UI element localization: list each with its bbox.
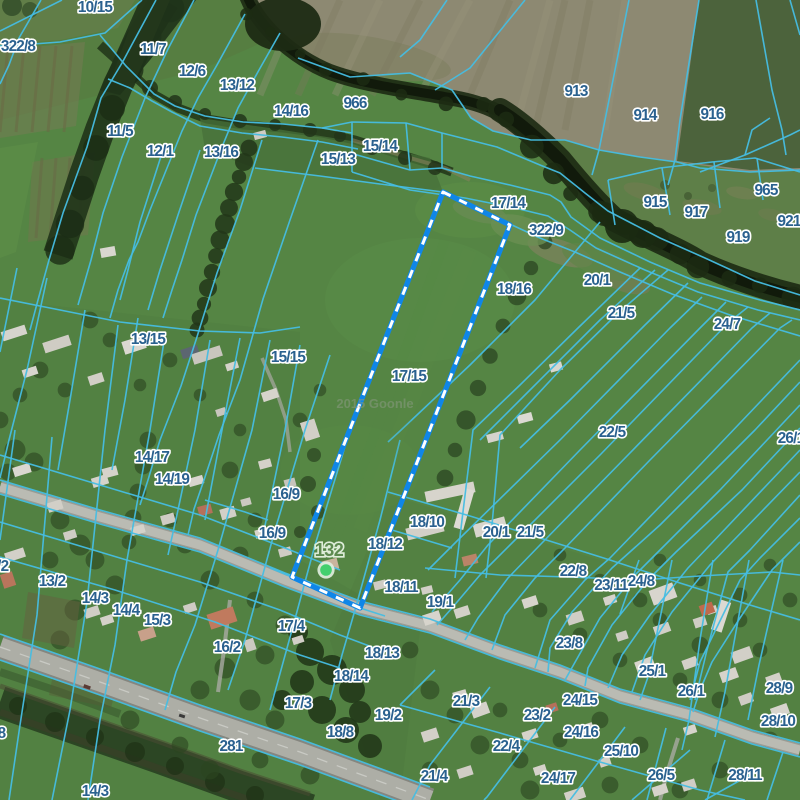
svg-text:15/14: 15/14 [363, 138, 399, 155]
svg-text:16/2: 16/2 [214, 639, 241, 656]
svg-text:21/5: 21/5 [608, 305, 636, 322]
svg-text:14/19: 14/19 [155, 471, 190, 488]
svg-text:21/3: 21/3 [453, 693, 480, 710]
svg-text:20/1: 20/1 [584, 272, 612, 289]
svg-text:18/16: 18/16 [497, 281, 532, 298]
svg-text:13/2: 13/2 [0, 558, 9, 575]
svg-text:14/4: 14/4 [113, 602, 141, 619]
svg-text:13/12: 13/12 [220, 77, 255, 94]
svg-text:22/8: 22/8 [560, 563, 588, 580]
svg-text:15/3: 15/3 [144, 612, 171, 629]
svg-text:28/9: 28/9 [766, 680, 793, 697]
svg-text:966: 966 [343, 95, 366, 112]
svg-text:322/8: 322/8 [1, 38, 37, 55]
svg-text:17/14: 17/14 [491, 195, 527, 212]
svg-text:23/11: 23/11 [594, 577, 629, 594]
svg-text:18/11: 18/11 [384, 579, 419, 596]
svg-text:20/1: 20/1 [483, 524, 511, 541]
svg-text:2015 Goonle: 2015 Goonle [336, 396, 413, 411]
svg-text:18/12: 18/12 [368, 536, 403, 553]
svg-text:17/15: 17/15 [392, 368, 428, 385]
svg-text:14/3: 14/3 [82, 590, 109, 607]
svg-text:23/2: 23/2 [524, 707, 551, 724]
svg-text:915: 915 [643, 194, 667, 211]
svg-text:13/2: 13/2 [39, 573, 66, 590]
svg-text:919: 919 [726, 229, 749, 246]
svg-text:11/5: 11/5 [107, 123, 134, 140]
svg-text:24/17: 24/17 [541, 770, 576, 787]
svg-text:23/8: 23/8 [556, 635, 584, 652]
svg-text:965: 965 [754, 182, 778, 199]
svg-text:15/13: 15/13 [321, 151, 356, 168]
svg-text:19/1: 19/1 [427, 594, 455, 611]
svg-text:322/9: 322/9 [529, 222, 564, 239]
svg-text:16/9: 16/9 [273, 486, 300, 503]
svg-text:921: 921 [777, 213, 800, 230]
svg-text:22/5: 22/5 [599, 424, 627, 441]
svg-text:26/5: 26/5 [648, 767, 676, 784]
svg-text:18/8: 18/8 [327, 724, 355, 741]
svg-text:28/11: 28/11 [728, 767, 763, 784]
svg-text:132: 132 [315, 540, 344, 560]
svg-text:914: 914 [633, 107, 657, 124]
svg-text:26/1: 26/1 [678, 683, 706, 700]
svg-text:21/5: 21/5 [517, 524, 545, 541]
svg-text:22/4: 22/4 [493, 738, 521, 755]
svg-text:24/7: 24/7 [714, 316, 741, 333]
svg-text:15/15: 15/15 [271, 349, 307, 366]
svg-text:25/1: 25/1 [639, 663, 667, 680]
svg-text:12/6: 12/6 [179, 63, 206, 80]
svg-text:11/7: 11/7 [140, 41, 166, 58]
svg-text:24/8: 24/8 [628, 573, 656, 590]
svg-text:21/4: 21/4 [421, 768, 449, 785]
svg-text:13/15: 13/15 [131, 331, 167, 348]
svg-text:17/3: 17/3 [285, 695, 312, 712]
svg-text:281: 281 [219, 738, 243, 755]
svg-text:14/3: 14/3 [82, 783, 109, 800]
svg-text:16/9: 16/9 [259, 525, 286, 542]
svg-text:19/2: 19/2 [375, 707, 402, 724]
svg-text:18/14: 18/14 [334, 668, 370, 685]
svg-text:28/10: 28/10 [761, 713, 796, 730]
svg-text:25/10: 25/10 [604, 743, 639, 760]
svg-text:18/13: 18/13 [365, 645, 400, 662]
svg-text:24/16: 24/16 [564, 724, 599, 741]
svg-text:26/1: 26/1 [778, 430, 800, 447]
svg-text:14/16: 14/16 [274, 103, 309, 120]
svg-text:17/4: 17/4 [278, 618, 306, 635]
svg-text:13/16: 13/16 [204, 144, 239, 161]
svg-text:916: 916 [700, 106, 723, 123]
svg-text:913: 913 [564, 83, 587, 100]
svg-text:10/15: 10/15 [78, 0, 114, 16]
svg-text:12/1: 12/1 [147, 143, 175, 160]
svg-text:917: 917 [684, 204, 707, 221]
svg-text:14/17: 14/17 [135, 449, 170, 466]
svg-text:24/15: 24/15 [563, 692, 599, 709]
svg-text:18/10: 18/10 [410, 514, 445, 531]
